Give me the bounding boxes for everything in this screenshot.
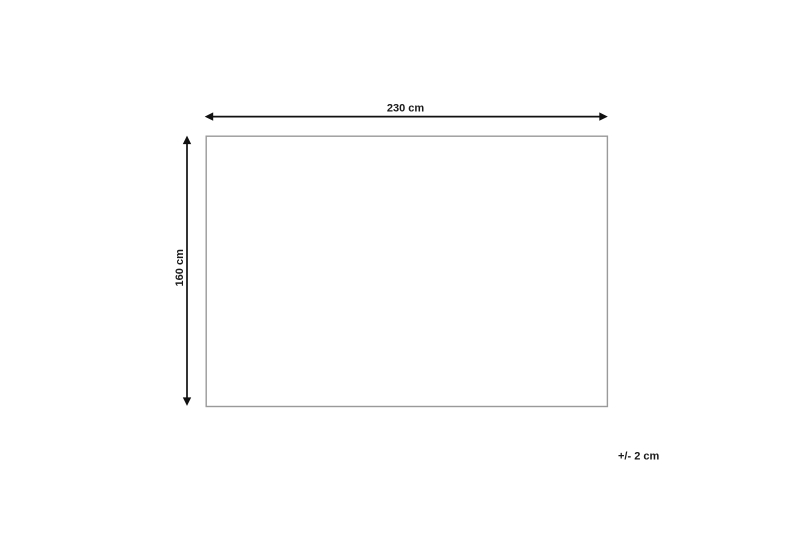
svg-text:160 cm: 160 cm [174,249,186,287]
svg-text:+/- 2 cm: +/- 2 cm [618,450,659,462]
svg-text:230 cm: 230 cm [387,103,425,115]
